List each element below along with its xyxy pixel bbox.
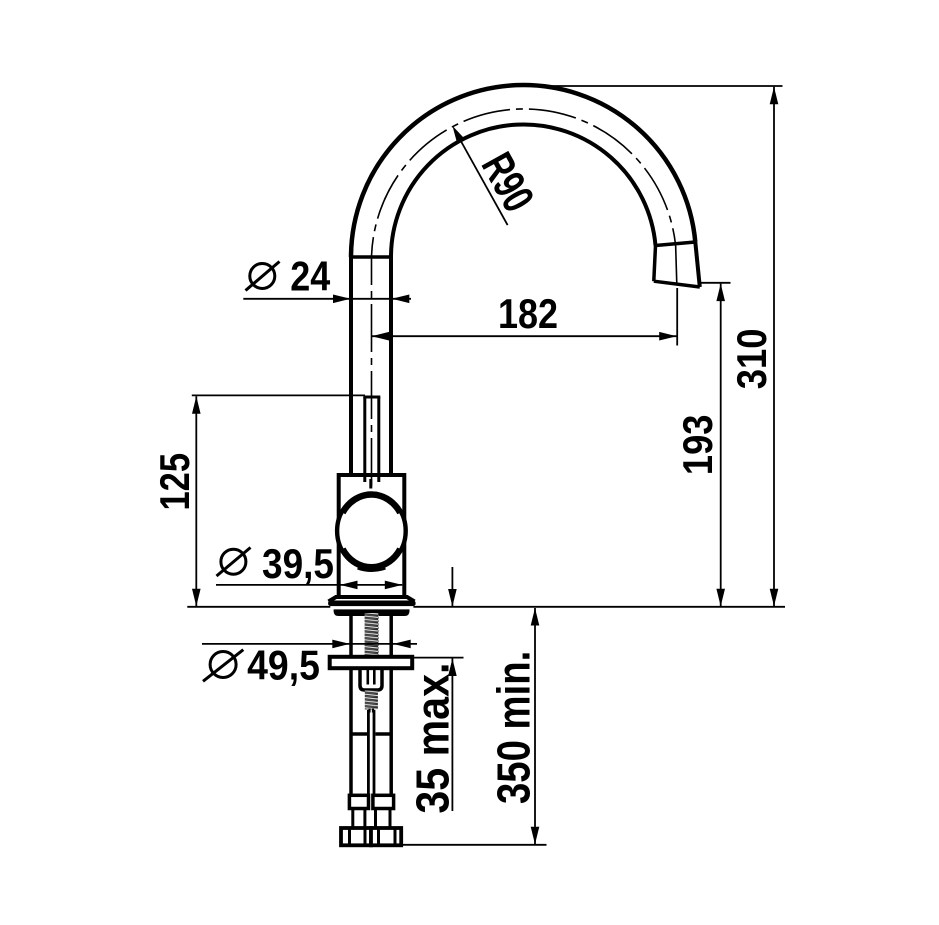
svg-text:39,5: 39,5 (262, 540, 334, 587)
svg-text:125: 125 (151, 453, 198, 511)
svg-text:193: 193 (674, 415, 721, 476)
svg-text:350 min.: 350 min. (488, 651, 540, 804)
svg-text:35 max.: 35 max. (407, 663, 459, 814)
svg-text:310: 310 (728, 329, 775, 390)
svg-text:24: 24 (290, 252, 331, 299)
svg-text:49,5: 49,5 (247, 641, 320, 688)
svg-text:182: 182 (498, 290, 558, 337)
